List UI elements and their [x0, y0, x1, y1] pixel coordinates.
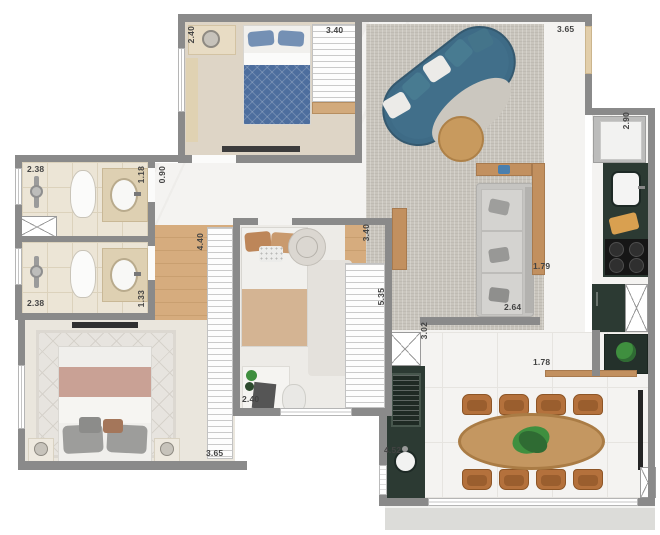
dimension-label-bedroom1-wardrobe-length: 3.40: [326, 26, 343, 35]
dimension-label-bedroom2-width: 2.40: [242, 395, 259, 404]
dimension-label-living-top-width: 3.65: [557, 25, 574, 34]
dimension-label-bath2-width: 2.38: [27, 299, 44, 308]
dimension-label-dining-depth: 3.02: [420, 322, 429, 339]
floor-plan: 2.403.403.652.902.381.180.904.403.402.38…: [0, 0, 660, 535]
dimension-label-hallway-width: 0.90: [158, 166, 167, 183]
dimension-label-service-counter-length: 4.52: [384, 446, 401, 455]
dimension-label-bath1-width: 2.38: [27, 165, 44, 174]
dimension-label-corridor-length: 4.40: [196, 233, 205, 250]
dimension-label-living-length: 5.35: [377, 288, 386, 305]
dimension-label-shelf-wall-length: 1.78: [533, 358, 550, 367]
dimension-label-kitchen-length: 2.90: [622, 112, 631, 129]
dimension-label-bath2-depth: 1.33: [137, 290, 146, 307]
dimension-labels-layer: 2.403.403.652.902.381.180.904.403.402.38…: [0, 0, 660, 535]
dimension-label-bedroom1-width: 2.40: [187, 26, 196, 43]
dimension-label-passage-width: 1.79: [533, 262, 550, 271]
dimension-label-bedroom2-length: 3.40: [362, 224, 371, 241]
dimension-label-bath1-depth: 1.18: [137, 166, 146, 183]
dimension-label-master-bedroom-width: 3.65: [206, 449, 223, 458]
dimension-label-sofa-wall-length: 2.64: [504, 303, 521, 312]
